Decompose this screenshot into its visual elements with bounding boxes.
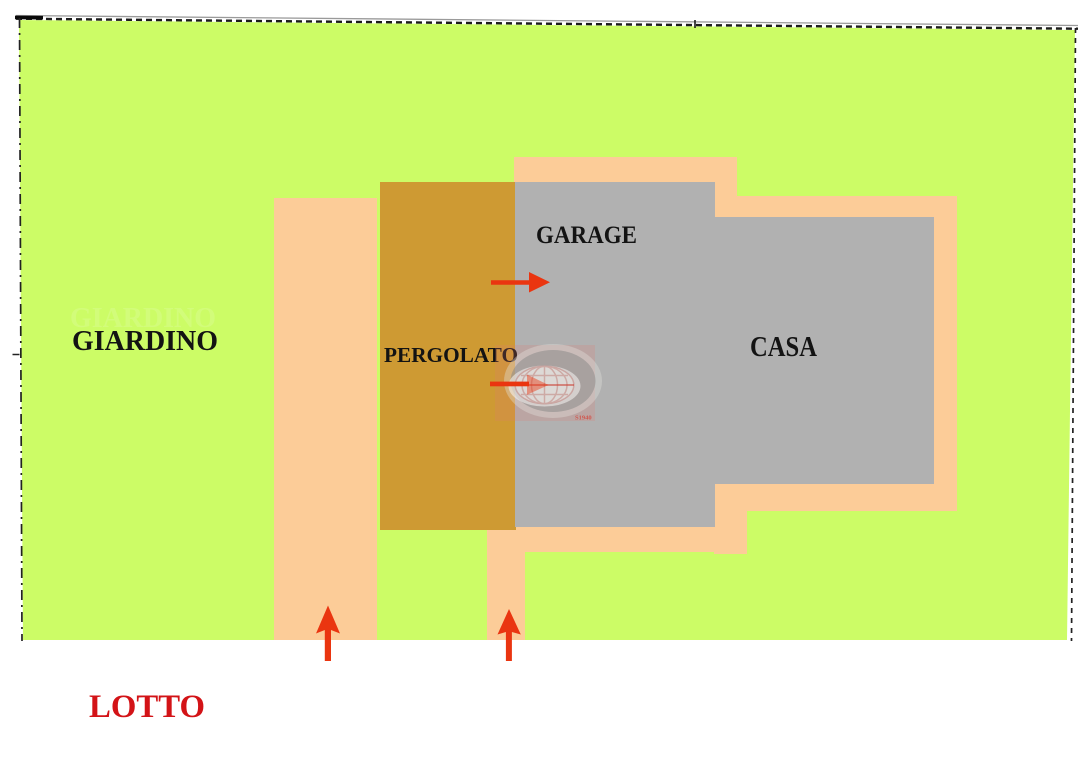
svg-text:CASA: CASA: [750, 332, 818, 363]
svg-text:GARAGE: GARAGE: [536, 222, 637, 249]
svg-text:LOTTO: LOTTO: [89, 689, 205, 725]
svg-text:S1940: S1940: [575, 415, 592, 422]
svg-text:GIARDINO: GIARDINO: [72, 325, 218, 357]
